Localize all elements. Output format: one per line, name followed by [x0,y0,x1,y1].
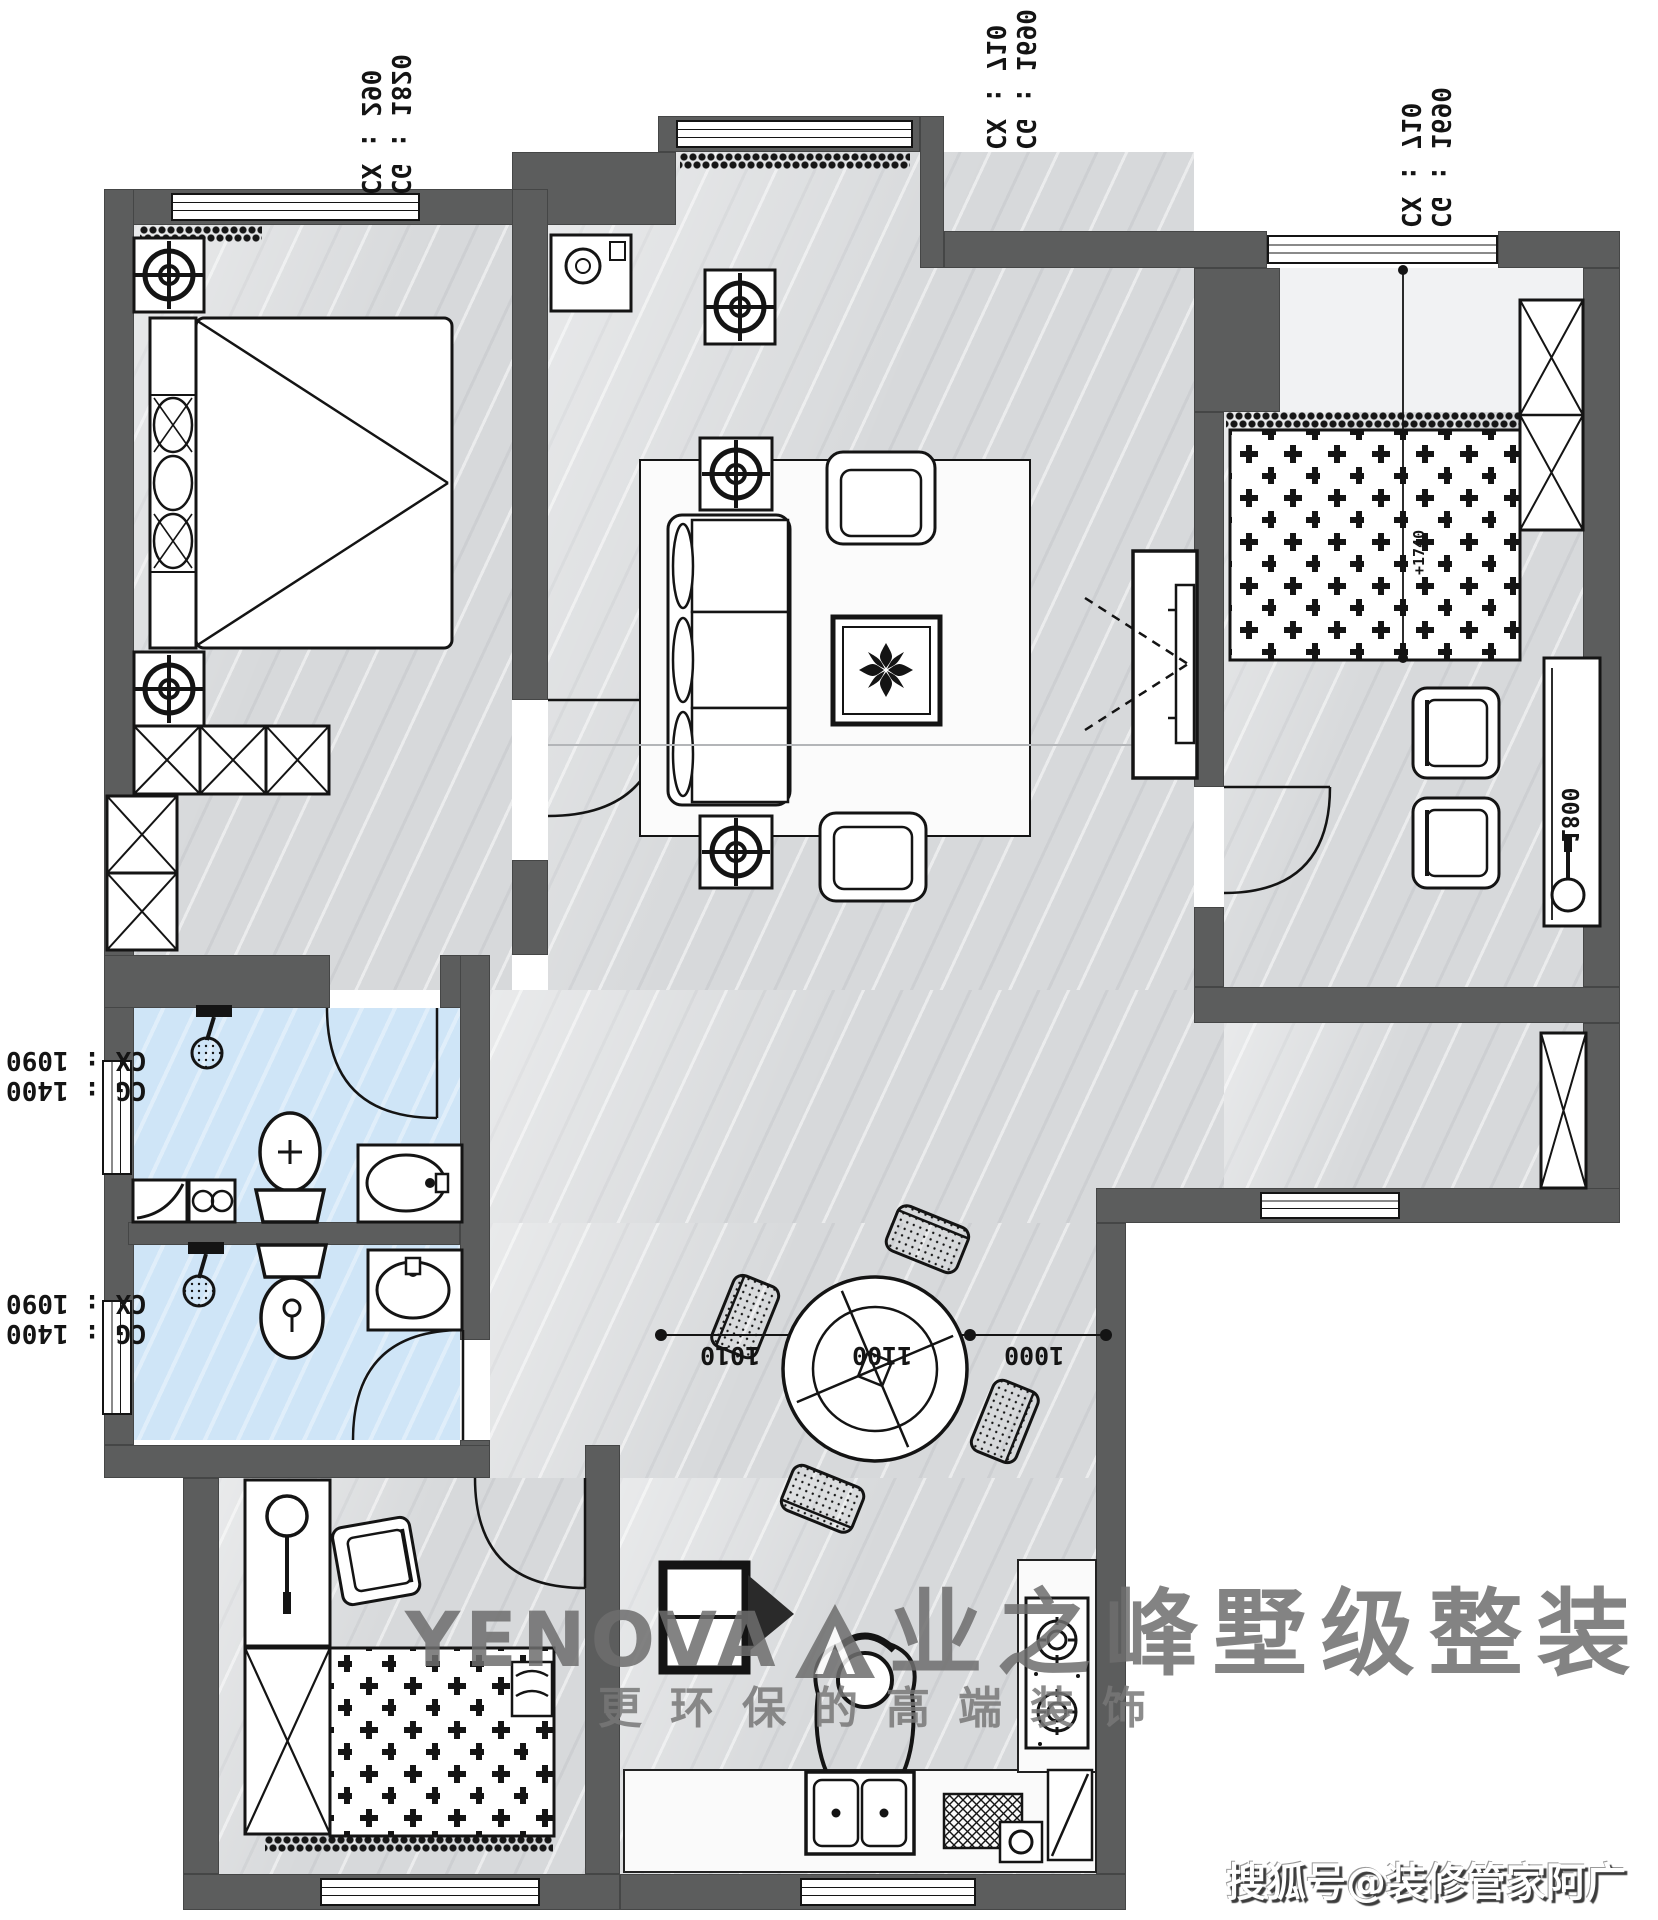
window-label-top-middle: CG : 1690 CX : 710 [980,9,1040,150]
stove [1026,1598,1088,1748]
tv-cabinet [1085,551,1197,778]
floor-plan-canvas: CG : 1820 CX : 290 CG : 1690 CX : 710 CG… [0,0,1658,1920]
label-line: CX : 290 [355,54,385,195]
window-living [676,120,913,148]
washing-machine [551,235,631,311]
dining-dim-1: 1010 [700,1341,760,1370]
sofa [668,515,790,805]
fridge-cabinet [663,1565,794,1670]
wardrobe-bottomleft [245,1648,330,1834]
door-arc-bath-lower [353,1330,463,1440]
double-roll-holder [189,1180,235,1222]
window-bedroomA [171,193,420,221]
window-bay [1267,235,1498,264]
ceiling-lamp-box [705,270,775,344]
end-table-2 [700,816,772,888]
window-kitchen [800,1878,976,1906]
label-line: CX : 710 [980,9,1010,150]
wardrobe-topleft [107,726,329,950]
kitchen-sink [806,1772,914,1854]
shower-head-upper [192,1005,232,1068]
label-line: CG : 1400 [6,1075,147,1105]
label-line: CG : 1400 [6,1318,147,1348]
window-bedroomC [320,1878,540,1906]
bedside-sketch [512,1662,552,1716]
label-line: CG : 1690 [1010,9,1040,150]
bed-elevation-marker: +1740 [1410,530,1428,575]
floor-drain [1000,1822,1042,1862]
nightstand-lamp-2 [134,652,204,726]
armchair-bottom [820,813,926,901]
armchair-right-2 [1413,798,1499,888]
label-line: CX : 710 [1395,87,1425,228]
furniture-layer [0,0,1658,1920]
washbasin-lower [368,1250,462,1330]
window-label-left-lower: CG : 1400 CX : 1090 [6,1288,147,1348]
end-table-1 [700,438,772,510]
label-line: CX : 1090 [6,1288,147,1318]
dining-dim-3: 1000 [1004,1341,1064,1370]
balcony-cabinet [1541,1033,1586,1188]
bed-right [1230,430,1520,660]
dining-chair [778,1462,866,1535]
cabinet-bottomleft [245,1480,330,1646]
label-line: CX : 1090 [6,1045,147,1075]
armchair-top [827,452,935,544]
toilet-lower [258,1245,326,1358]
wardrobe-right [1520,300,1583,530]
door-arc-bedroomC [475,1478,585,1588]
bed-topleft [150,318,452,648]
coffee-table [833,617,940,724]
door-arc-bedroomB [1224,787,1330,893]
armchair-right-1 [1413,688,1499,778]
window-label-left-upper: CG : 1400 CX : 1090 [6,1045,147,1105]
watermark-credit: 搜狐号@装修管家阿广 [1226,1850,1626,1908]
dining-chair [883,1203,971,1276]
label-line: CG : 1690 [1425,87,1455,228]
squeegee-tray [133,1180,187,1222]
nightstand-lamp-1 [134,238,204,312]
tall-unit [1048,1770,1092,1860]
shower-head-lower [184,1242,224,1306]
dining-dim-2: 1100 [852,1341,912,1370]
window-balcony-right [1260,1192,1400,1219]
door-arc-bath-upper [327,1008,437,1118]
washbasin-upper [358,1145,462,1222]
label-line: CG : 1820 [385,54,415,195]
dining-chair [968,1377,1041,1465]
window-label-top-right: CG : 1690 CX : 710 [1395,87,1455,228]
window-label-top-left: CG : 1820 CX : 290 [355,54,415,195]
toilet-upper [256,1113,324,1222]
chair-bottomleft [331,1516,421,1606]
desk-dim-label: 1800 [1556,788,1582,843]
